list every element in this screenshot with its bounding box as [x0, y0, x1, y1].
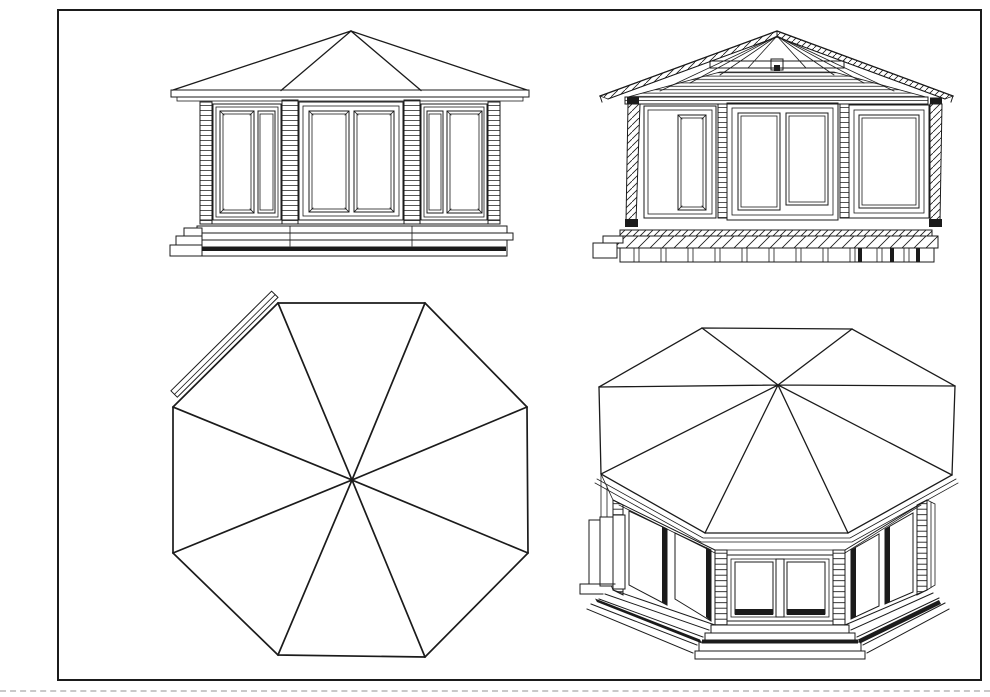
steps-strip: [171, 291, 278, 397]
window: [787, 562, 825, 614]
corner-post-cut: [626, 104, 640, 222]
page-bottom-divider: [0, 690, 990, 692]
joist-band: [614, 236, 938, 248]
window: [629, 511, 667, 605]
wall-sill: [200, 220, 500, 224]
deck-band: [620, 230, 932, 236]
corner-post: [282, 100, 298, 224]
window-panel-left: [213, 104, 281, 220]
roof-hip-spokes: [599, 328, 955, 533]
corner-post: [200, 102, 212, 224]
window-panel-center: [727, 103, 838, 220]
corner-post: [840, 104, 849, 218]
section-elevation-view: [590, 20, 960, 270]
corner-post: [404, 100, 420, 224]
front-elevation-view: [168, 28, 532, 260]
perspective-view: [575, 303, 987, 673]
roof-truss: [600, 31, 953, 104]
roof-canopy: [595, 328, 958, 542]
walls: [625, 98, 942, 228]
support-row: [620, 248, 934, 262]
corner-post: [488, 102, 500, 224]
hip-roof: [171, 31, 529, 101]
corner-post: [718, 104, 727, 218]
window-sill-bar: [735, 609, 773, 615]
window-panel-right: [849, 105, 929, 218]
corner-post: [917, 500, 927, 595]
roof-plan-view: [160, 287, 540, 667]
window: [735, 562, 773, 614]
base-platform: [593, 230, 938, 262]
walls: [200, 100, 500, 224]
window-panel-center: [299, 102, 403, 220]
mullion: [776, 559, 784, 617]
base-platform: [170, 226, 513, 256]
front-wall: [715, 550, 845, 625]
window-panel-left: [644, 106, 716, 218]
base-bands: [587, 593, 949, 659]
corner-post-cut: [930, 104, 942, 222]
fascia-band: [171, 90, 529, 97]
base-dark-band: [198, 247, 506, 252]
far-right-facet: [927, 500, 935, 590]
window: [675, 533, 711, 621]
window-sill-bar: [787, 609, 825, 615]
side-steps: [580, 515, 625, 594]
window-panel-right: [421, 104, 487, 220]
corner-post: [833, 550, 845, 625]
entry-steps: [170, 228, 202, 256]
corner-post: [715, 550, 727, 625]
